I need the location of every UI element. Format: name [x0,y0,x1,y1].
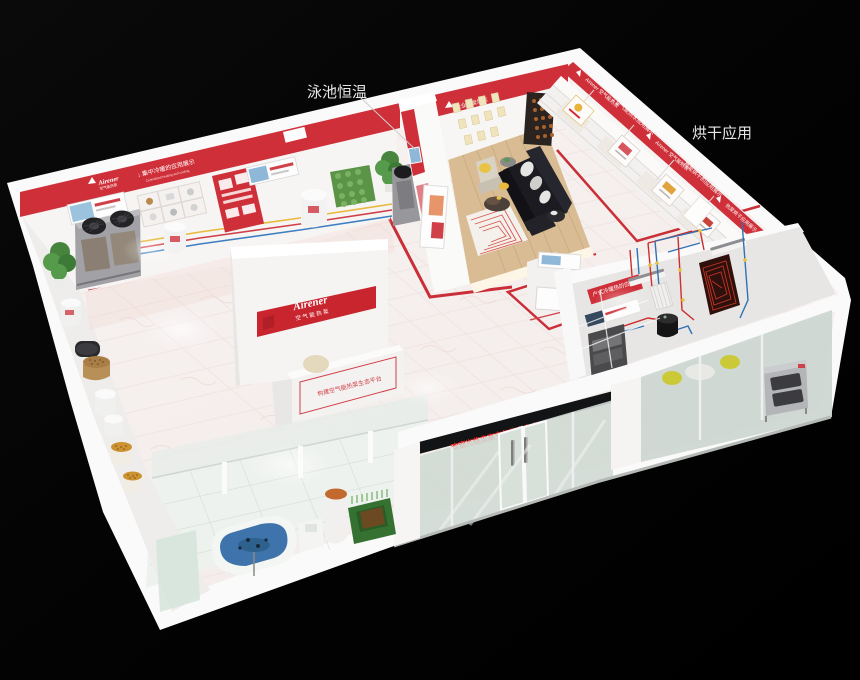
svg-text:泳池恒温: 泳池恒温 [307,84,367,101]
svg-text:烘干应用: 烘干应用 [692,124,752,142]
